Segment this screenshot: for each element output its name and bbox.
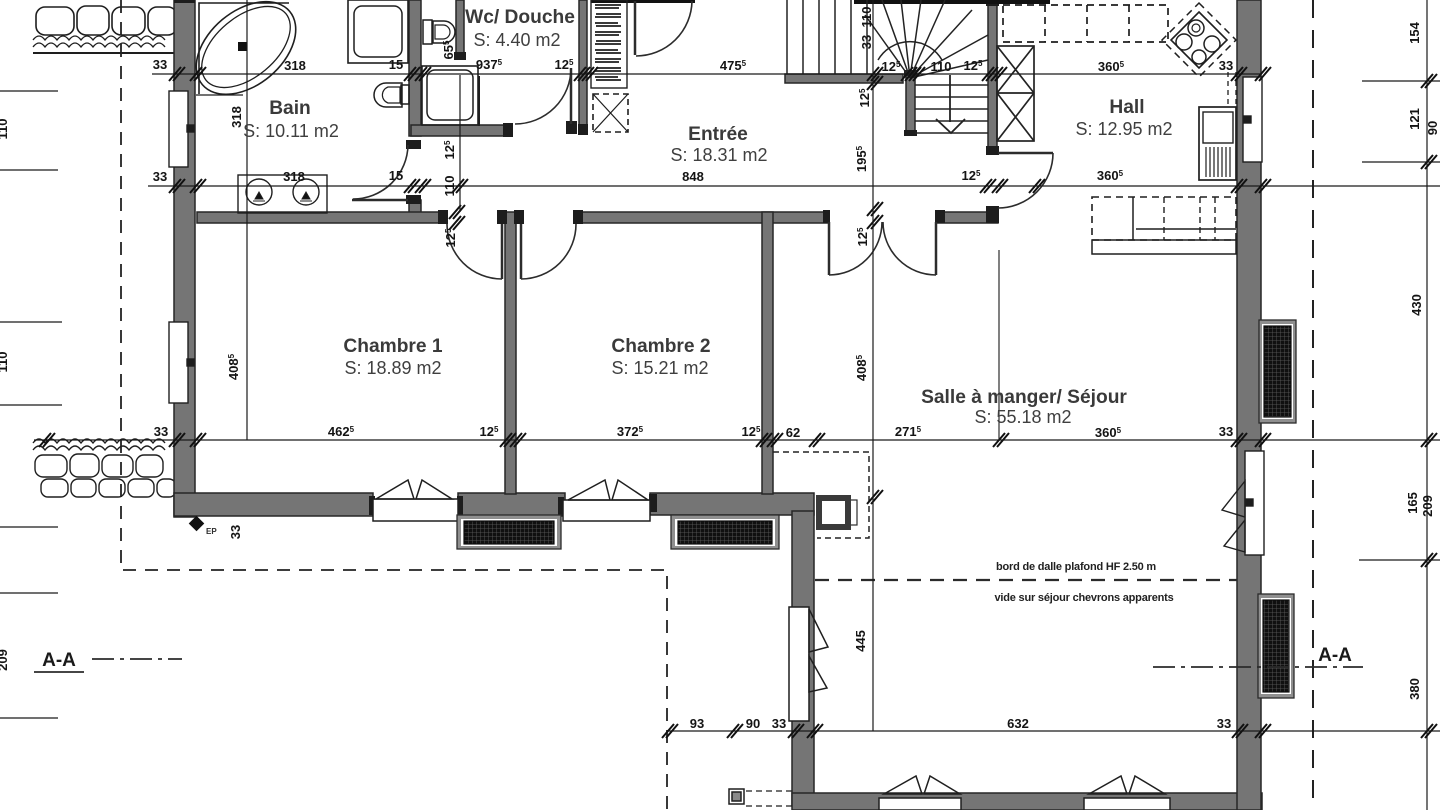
svg-text:Chambre 1: Chambre 1	[343, 336, 442, 357]
svg-text:15: 15	[389, 168, 403, 183]
svg-text:33: 33	[1219, 424, 1233, 439]
svg-text:110: 110	[859, 7, 874, 28]
svg-text:318: 318	[284, 58, 306, 73]
svg-text:S: 15.21 m2: S: 15.21 m2	[611, 358, 708, 378]
svg-text:EP: EP	[206, 527, 217, 536]
svg-text:S: 12.95 m2: S: 12.95 m2	[1075, 119, 1172, 139]
svg-text:445: 445	[853, 630, 868, 652]
svg-text:33: 33	[153, 57, 167, 72]
svg-text:bord de dalle plafond HF 2.50: bord de dalle plafond HF 2.50 m	[996, 561, 1156, 573]
svg-text:165: 165	[1405, 492, 1420, 514]
svg-text:430: 430	[1409, 294, 1424, 316]
svg-text:S: 55.18 m2: S: 55.18 m2	[974, 407, 1071, 427]
svg-text:33: 33	[772, 716, 786, 731]
svg-text:110: 110	[0, 352, 10, 373]
svg-text:121: 121	[1407, 108, 1422, 130]
svg-text:380: 380	[1407, 678, 1422, 700]
svg-text:33: 33	[228, 525, 243, 539]
svg-text:90: 90	[746, 716, 760, 731]
svg-text:318: 318	[229, 106, 244, 128]
svg-text:Bain: Bain	[269, 98, 311, 119]
svg-text:vide sur séjour chevrons appar: vide sur séjour chevrons apparents	[994, 592, 1173, 604]
svg-text:110: 110	[442, 176, 457, 197]
svg-text:62: 62	[786, 425, 800, 440]
svg-text:209: 209	[1420, 495, 1435, 517]
svg-text:S: 18.89 m2: S: 18.89 m2	[344, 358, 441, 378]
svg-text:154: 154	[1407, 21, 1422, 43]
svg-text:318: 318	[283, 169, 305, 184]
svg-text:90: 90	[1425, 121, 1440, 135]
svg-text:A-A: A-A	[1318, 645, 1352, 666]
svg-text:110: 110	[931, 59, 952, 74]
svg-text:33: 33	[1219, 58, 1233, 73]
svg-text:A-A: A-A	[42, 650, 76, 671]
svg-text:S: 18.31 m2: S: 18.31 m2	[670, 145, 767, 165]
svg-text:110: 110	[0, 119, 10, 140]
svg-text:S: 10.11 m2: S: 10.11 m2	[243, 121, 339, 141]
svg-text:33: 33	[154, 424, 168, 439]
svg-text:33: 33	[153, 169, 167, 184]
svg-text:Salle à manger/ Séjour: Salle à manger/ Séjour	[921, 387, 1127, 408]
svg-text:S: 4.40 m2: S: 4.40 m2	[473, 30, 560, 50]
svg-text:632: 632	[1007, 716, 1029, 731]
svg-text:33: 33	[1217, 716, 1231, 731]
svg-text:33: 33	[859, 35, 874, 49]
svg-text:848: 848	[682, 169, 704, 184]
svg-text:Chambre 2: Chambre 2	[611, 336, 710, 357]
svg-text:Entrée: Entrée	[688, 124, 748, 145]
svg-text:93: 93	[690, 716, 704, 731]
svg-text:Hall: Hall	[1109, 97, 1144, 118]
svg-text:15: 15	[389, 57, 403, 72]
svg-text:209: 209	[0, 649, 10, 671]
svg-text:Wc/ Douche: Wc/ Douche	[465, 7, 575, 28]
